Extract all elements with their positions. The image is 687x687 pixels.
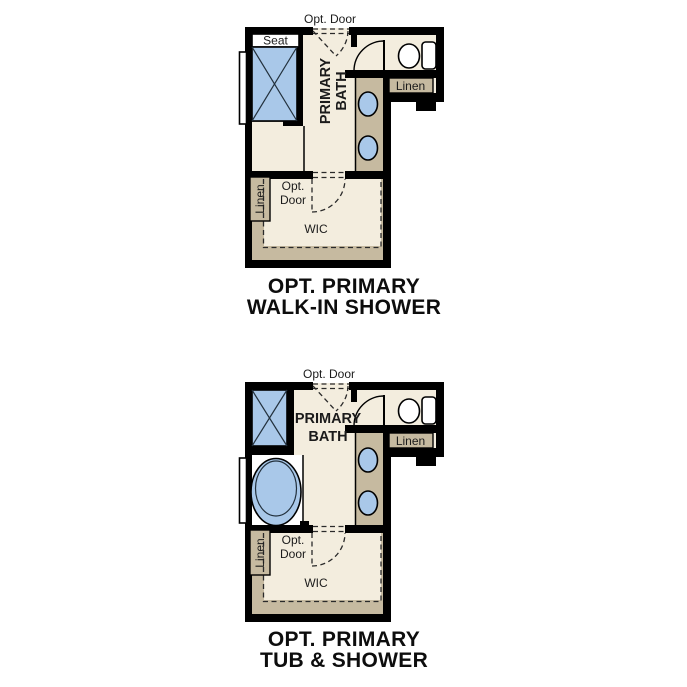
linen-right-label: Linen <box>396 79 425 93</box>
wic-label: WIC <box>304 222 328 236</box>
room-name-line2: BATH <box>334 71 350 110</box>
tub-glass-panel <box>240 458 247 523</box>
floorplan-page: Opt. Door Seat PRIMARY BATH Linen Linen … <box>0 0 687 687</box>
plan-walk-in-shower-drawing: Opt. Door Seat PRIMARY BATH Linen Linen … <box>228 0 460 275</box>
linen-left-label: Linen <box>253 538 267 567</box>
plan1-caption: OPT. PRIMARY WALK-IN SHOWER <box>208 276 480 318</box>
plan1-caption-line2: WALK-IN SHOWER <box>208 297 480 318</box>
plan2-caption-line2: TUB & SHOWER <box>208 650 480 671</box>
wic-door-label-line1: Opt. <box>282 533 305 547</box>
wic-door-label-line1: Opt. <box>282 179 305 193</box>
shower-glass-panel <box>240 52 247 124</box>
opt-door-top-label: Opt. Door <box>303 367 355 381</box>
linen-right-label: Linen <box>396 434 425 448</box>
room-name-line1: PRIMARY <box>318 58 334 125</box>
sink-2 <box>359 136 378 160</box>
wic-door-label-line2: Door <box>280 547 306 561</box>
wic-label: WIC <box>304 576 328 590</box>
walk-in-shower <box>252 47 297 121</box>
room-name-line1: PRIMARY <box>295 411 362 427</box>
bathtub <box>251 459 301 526</box>
plan1-caption-line1: OPT. PRIMARY <box>208 276 480 297</box>
wic-door-label-line2: Door <box>280 193 306 207</box>
plan2-caption-line1: OPT. PRIMARY <box>208 629 480 650</box>
opt-door-top-label: Opt. Door <box>304 12 356 26</box>
plan2-caption: OPT. PRIMARY TUB & SHOWER <box>208 629 480 671</box>
sink-2 <box>359 491 378 515</box>
shower <box>252 390 287 446</box>
seat-label: Seat <box>263 34 288 48</box>
room-name-line2: BATH <box>308 429 347 445</box>
sink-1 <box>359 448 378 472</box>
linen-left-label: Linen <box>253 184 267 213</box>
sink-1 <box>359 92 378 116</box>
plan-tub-shower-drawing: Opt. Door PRIMARY BATH Linen Linen Opt. … <box>228 355 460 625</box>
